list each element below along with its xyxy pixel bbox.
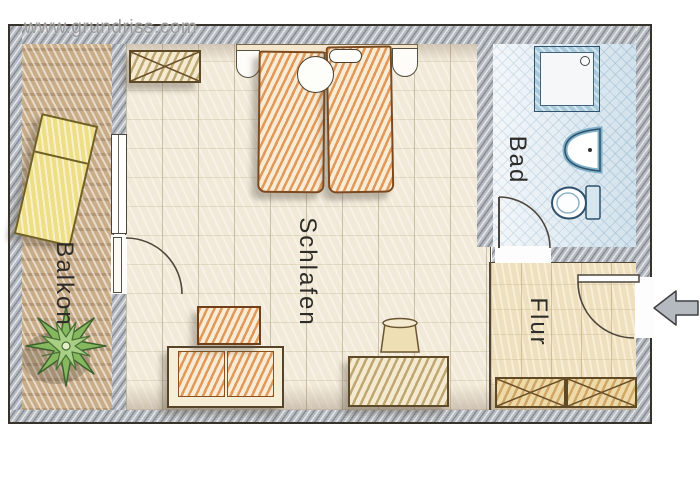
nightstand-left xyxy=(236,50,260,78)
wardrobe-x-icon xyxy=(131,52,199,81)
balcony-door-leaf xyxy=(113,237,122,293)
wall-balcony-partition-upper xyxy=(112,44,126,134)
bathroom-label: Bad xyxy=(503,136,531,185)
wardrobe-x-icon xyxy=(568,379,635,406)
nightstand-right xyxy=(392,48,418,77)
sofa-cushion-right xyxy=(227,351,274,397)
shower xyxy=(534,46,600,112)
bed-mattress-right xyxy=(326,45,395,193)
wall-bathroom-partition xyxy=(477,44,493,247)
bed-pillow-round xyxy=(297,56,334,93)
hall-wardrobe-left xyxy=(495,377,566,408)
wall-balcony-partition-lower xyxy=(112,294,126,410)
sun-lounger-backrest-line xyxy=(35,151,88,165)
entrance-door-opening xyxy=(635,277,654,338)
hallway-label: Flur xyxy=(524,297,552,346)
balcony-label: Balkon xyxy=(50,241,78,326)
bathroom-door-opening xyxy=(495,246,551,263)
desk xyxy=(348,356,449,407)
sofa xyxy=(167,346,284,408)
watermark-text: www.grundriss.com xyxy=(24,17,197,39)
bed-pillow-oval xyxy=(329,49,362,63)
wardrobe-x-icon xyxy=(497,379,564,406)
shower-drain-icon xyxy=(580,56,590,66)
sofa-cushion-left xyxy=(178,351,225,397)
bedroom-wardrobe xyxy=(129,50,201,83)
wall-bottom xyxy=(8,410,652,424)
wall-right xyxy=(636,24,652,424)
entrance-arrow-icon xyxy=(654,291,698,325)
balcony-window xyxy=(111,134,127,234)
hall-wardrobe-right xyxy=(566,377,637,408)
bedroom-label: Schlafen xyxy=(293,217,321,326)
coffee-table xyxy=(197,306,261,345)
floor-plan: Balkon Schlafen Bad Flur www.grundriss.c… xyxy=(0,0,700,500)
